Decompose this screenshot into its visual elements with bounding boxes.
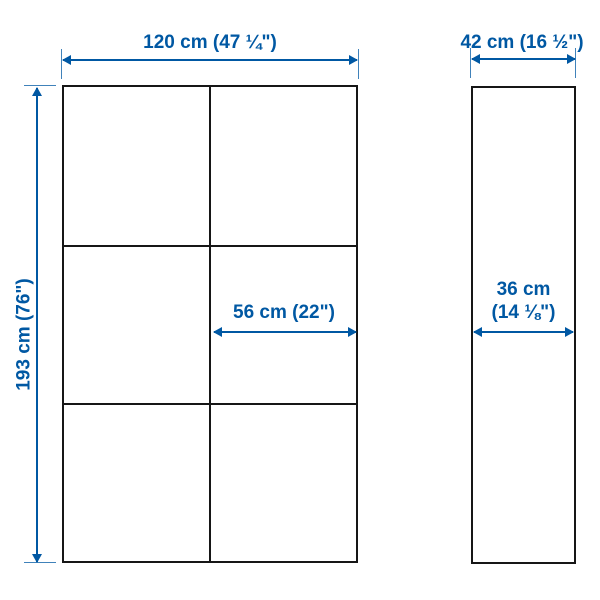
height-dimension-arrow: [36, 88, 38, 562]
height-extension-line-top: [24, 85, 56, 86]
front-view-outline: [62, 85, 358, 563]
height-dimension-label: 193 cm (76"): [13, 225, 36, 445]
width-extension-line-left: [61, 49, 62, 79]
front-view-row-divider-2: [64, 403, 356, 405]
inner-width-dimension-label: 56 cm (22"): [210, 301, 358, 324]
width-extension-line-right: [358, 49, 359, 79]
inner-width-dimension-arrow: [214, 331, 356, 333]
front-view-row-divider-1: [64, 245, 356, 247]
front-view-column-divider: [209, 87, 211, 561]
depth-dimension-arrow: [472, 58, 575, 60]
inner-depth-dimension-arrow: [474, 331, 573, 333]
width-dimension-arrow: [63, 59, 357, 61]
dimension-diagram: 120 cm (47 ¼") 193 cm (76") 56 cm (22") …: [0, 0, 600, 600]
height-extension-line-bottom: [24, 562, 56, 563]
inner-depth-dimension-label: 36 cm (14 ⅛"): [458, 278, 589, 324]
depth-extension-line-left: [470, 48, 471, 78]
depth-extension-line-right: [575, 48, 576, 78]
width-dimension-label: 120 cm (47 ¼"): [62, 31, 358, 54]
side-view-outline: [471, 86, 576, 564]
inner-depth-dimension-label-line1: 36 cm: [458, 278, 589, 301]
inner-depth-dimension-label-line2: (14 ⅛"): [458, 301, 589, 324]
